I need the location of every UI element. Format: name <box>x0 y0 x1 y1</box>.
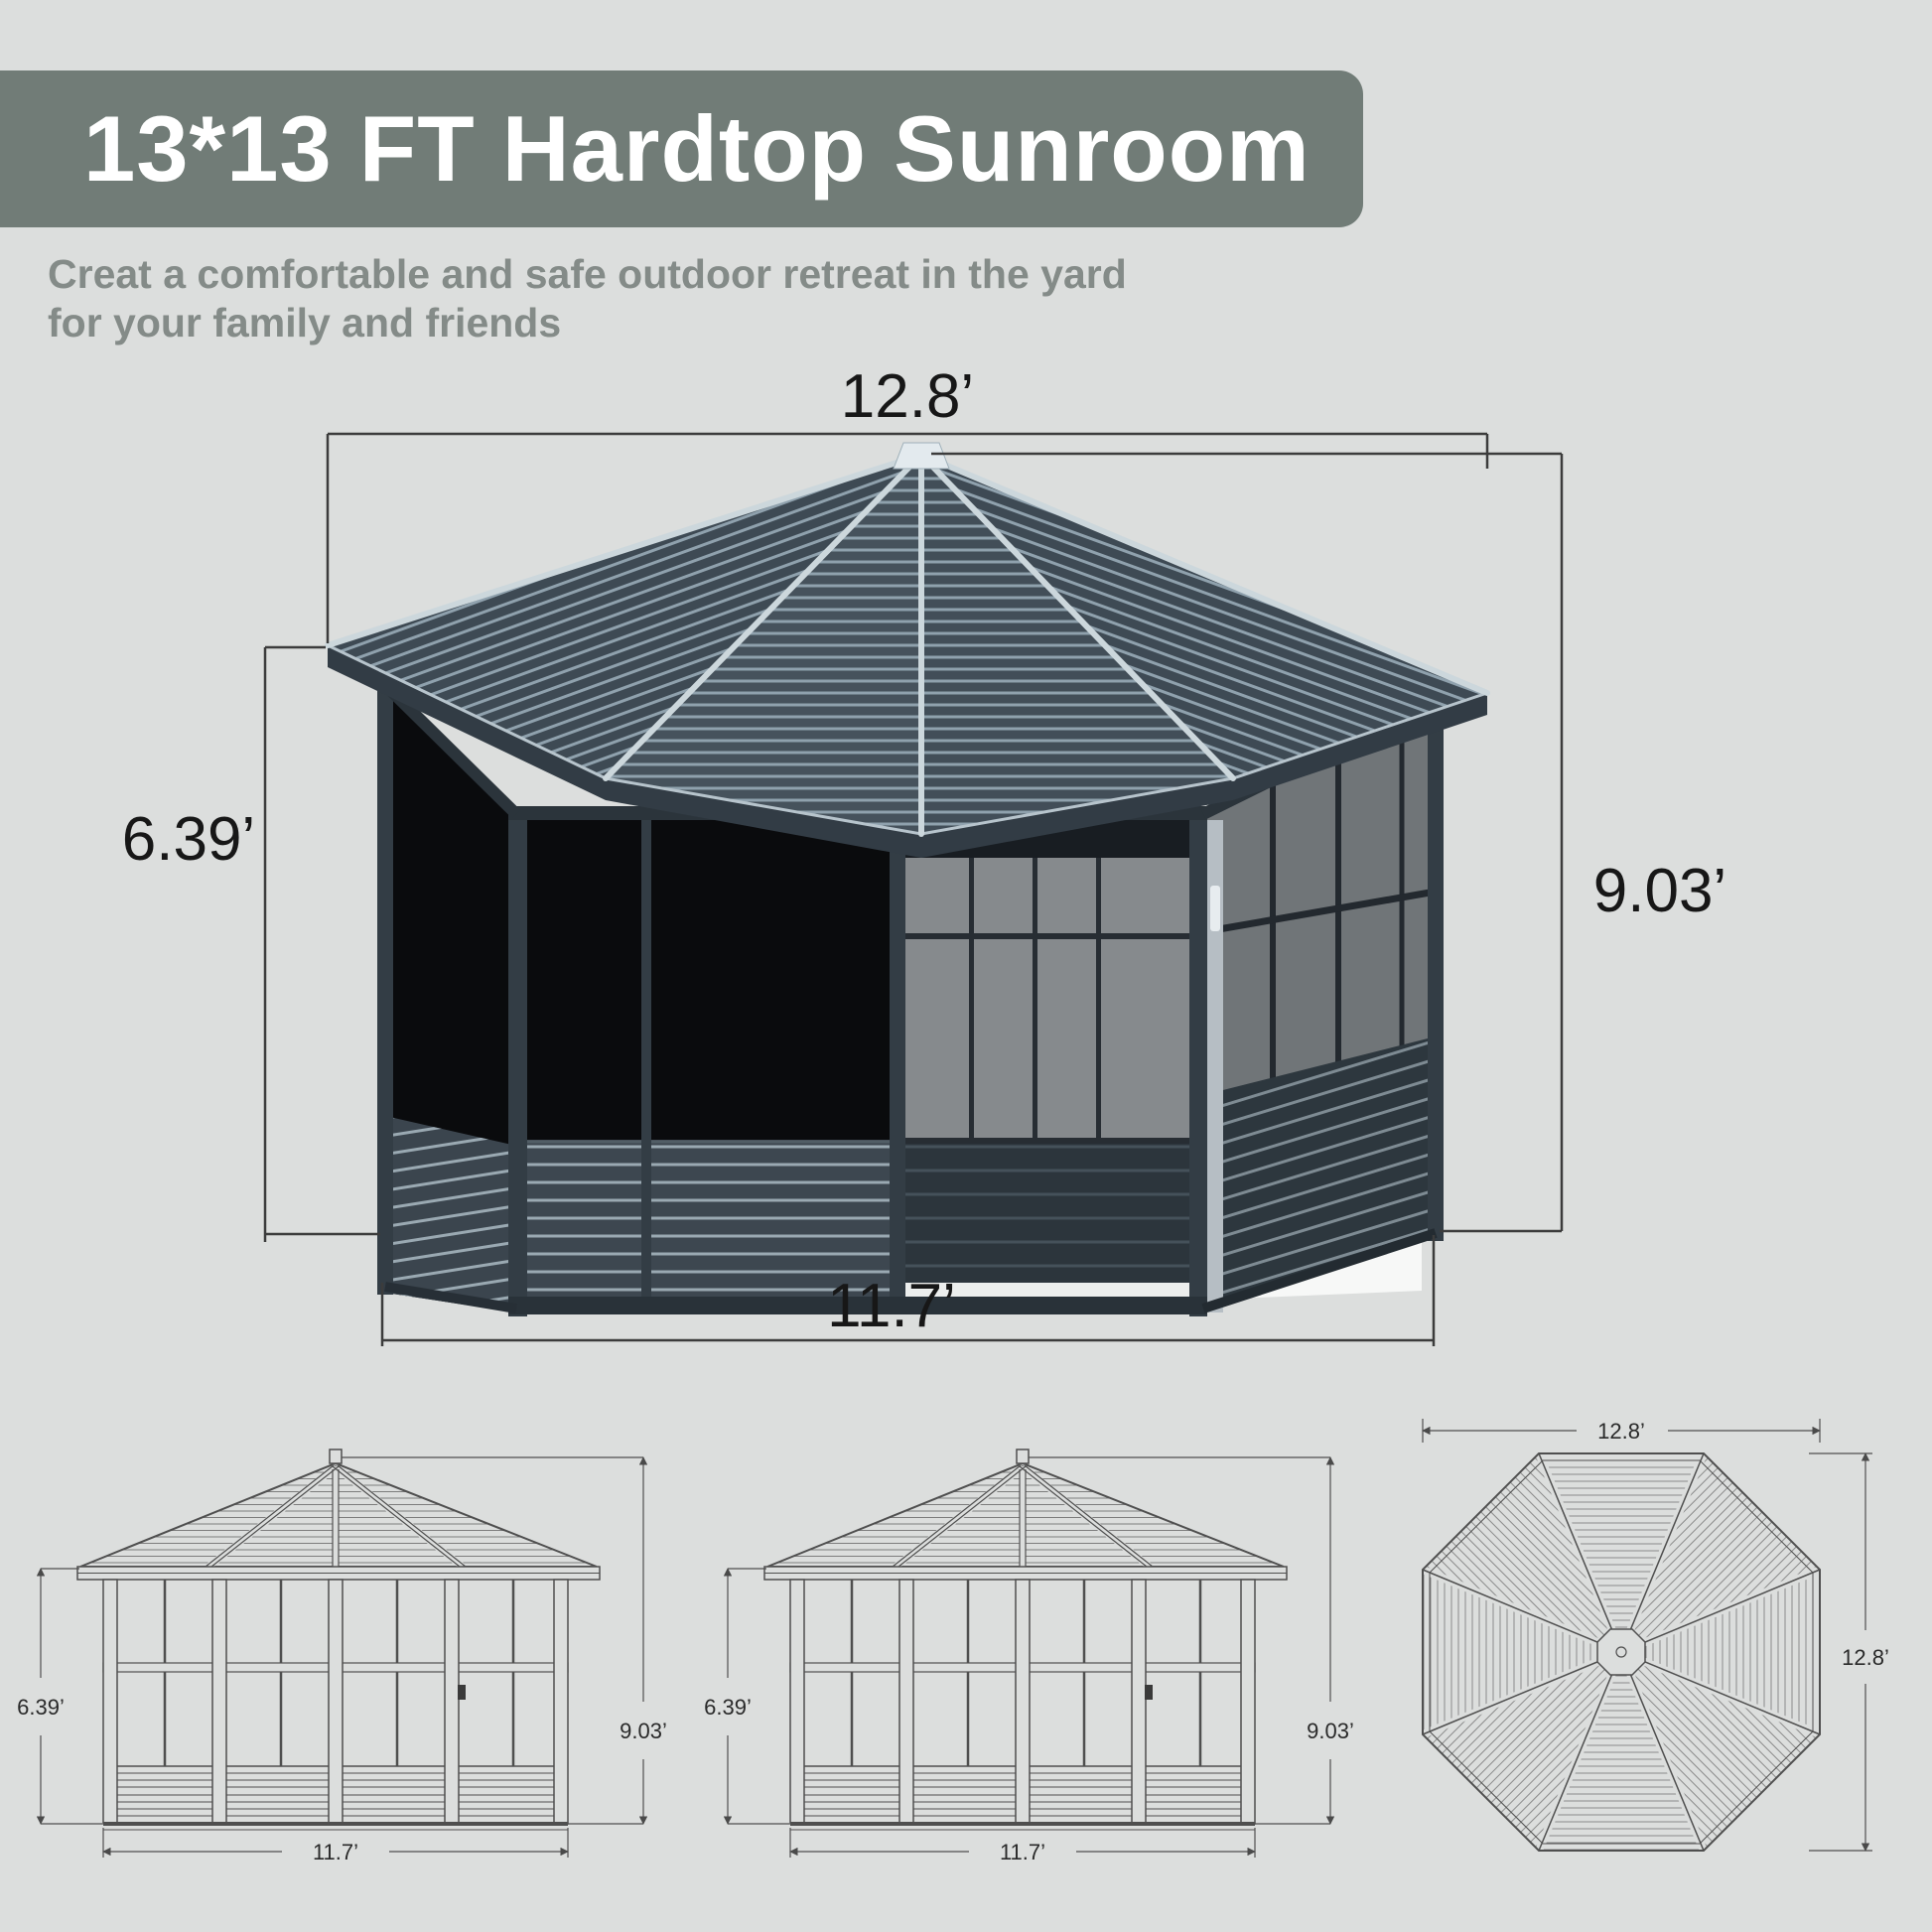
front-screen-panels <box>527 820 890 1312</box>
rear-elevation-drawing: 6.39’ 9.03’ 11.7’ <box>704 1449 1354 1864</box>
rear-elevation-wall-height: 6.39’ <box>704 1695 752 1720</box>
product-infographic-page: 13*13 FT Hardtop Sunroom Creat a comfort… <box>0 0 1932 1932</box>
roof-top-view-drawing: 12.8’ 12.8’ <box>1423 1419 1889 1851</box>
top-view-depth: 12.8’ <box>1842 1645 1889 1670</box>
gazebo-photo-illustration <box>328 443 1487 1316</box>
label-wall-height: 6.39’ <box>122 805 255 874</box>
label-roof-width: 12.8’ <box>841 362 974 431</box>
subtitle-line-1: Creat a comfortable and safe outdoor ret… <box>48 250 1239 299</box>
subtitle: Creat a comfortable and safe outdoor ret… <box>48 250 1239 347</box>
open-doorway-interior <box>905 820 1189 1314</box>
label-total-height: 9.03’ <box>1593 857 1726 925</box>
rear-elevation-total-height: 9.03’ <box>1307 1719 1354 1743</box>
front-elevation-total-height: 9.03’ <box>620 1719 667 1743</box>
front-elevation-wall-height: 6.39’ <box>17 1695 65 1720</box>
title-banner: 13*13 FT Hardtop Sunroom <box>0 70 1363 227</box>
rear-elevation-base-width: 11.7’ <box>1000 1840 1045 1864</box>
subtitle-line-2: for your family and friends <box>48 299 1239 347</box>
front-elevation-drawing: 6.39’ 9.03’ 11.7’ <box>17 1449 667 1864</box>
page-title: 13*13 FT Hardtop Sunroom <box>83 95 1311 203</box>
top-view-width: 12.8’ <box>1597 1419 1645 1444</box>
roof-apex-cap <box>894 443 949 469</box>
left-screen-panel <box>385 683 516 1312</box>
main-dimension-diagram: 12.8’ 6.39’ 9.03’ 11.7’ <box>0 357 1932 1390</box>
front-elevation-base-width: 11.7’ <box>313 1840 358 1864</box>
label-base-width: 11.7’ <box>827 1272 956 1340</box>
technical-drawings: 6.39’ 9.03’ 11.7’ 6.39’ 9.03’ 11.7’ <box>0 1410 1932 1932</box>
door-handle <box>1210 886 1220 931</box>
roof-hub <box>1597 1629 1645 1675</box>
